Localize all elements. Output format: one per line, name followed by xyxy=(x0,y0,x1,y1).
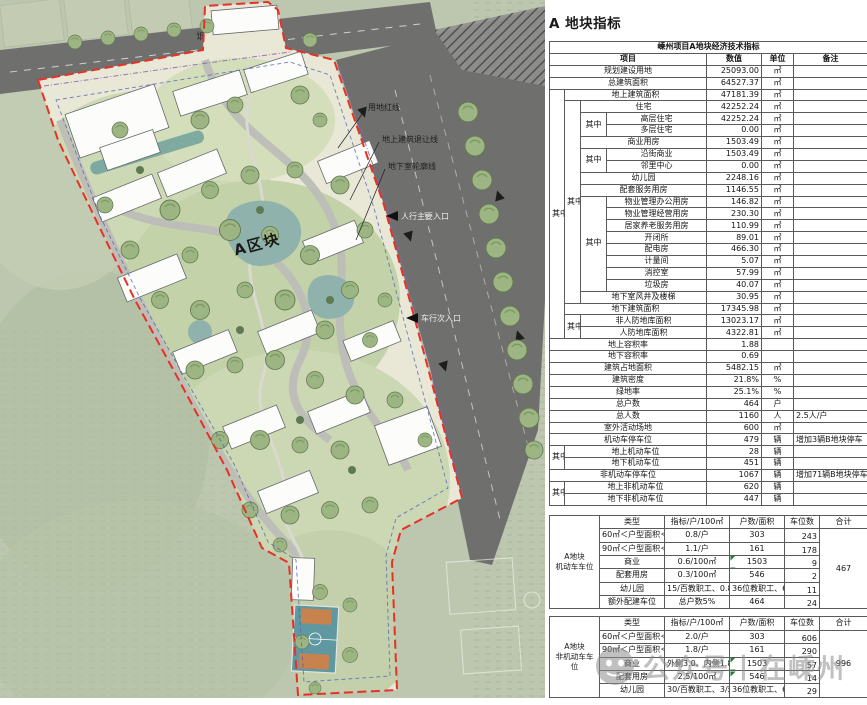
table-cell: 4322.81 xyxy=(707,327,762,339)
table-cell: 546 xyxy=(730,569,785,582)
table-cell xyxy=(794,149,867,161)
table-cell: 类型 xyxy=(600,617,665,630)
table-cell: 161 xyxy=(730,542,785,555)
table-cell: 户数/面积 xyxy=(730,617,785,630)
table-cell: 增加3辆B地块停车 xyxy=(794,434,867,446)
table-cell: 消控室 xyxy=(607,267,707,279)
table-cell: ㎡ xyxy=(762,172,794,184)
table-cell: 1.8/户 xyxy=(665,644,730,657)
table-cell: 数值 xyxy=(707,53,762,65)
table-cell: 居家养老服务用房 xyxy=(607,220,707,232)
table-cell: 5.07 xyxy=(707,256,762,268)
table-cell: 邻里中心 xyxy=(607,160,707,172)
table-cell: 2.0/户 xyxy=(665,630,730,643)
table-cell: ㎡ xyxy=(762,422,794,434)
table-cell: 辆 xyxy=(762,446,794,458)
table-cell: 其中 xyxy=(550,446,565,470)
table-cell xyxy=(794,77,867,89)
table-cell: 沿街商业 xyxy=(607,149,707,161)
table-cell: 合计 xyxy=(820,515,867,528)
setback-line-label: 地上建筑退让线 xyxy=(382,134,438,144)
table-cell: 9 xyxy=(785,555,820,568)
table-cell: 1.88 xyxy=(707,339,762,351)
building-footprint xyxy=(291,558,314,601)
table-cell: 451 xyxy=(707,458,762,470)
table-cell xyxy=(762,339,794,351)
table-cell: 0.00 xyxy=(707,160,762,172)
table-cell: ㎡ xyxy=(762,267,794,279)
table-cell: 商业用房 xyxy=(581,137,707,149)
table-cell: ㎡ xyxy=(762,244,794,256)
table-cell: ㎡ xyxy=(762,291,794,303)
table-cell: 290 xyxy=(785,644,820,657)
table-cell: 1146.55 xyxy=(707,184,762,196)
vehicle-entrance-label: 车行次入口 xyxy=(421,313,461,323)
table-cell: A地块 机动车车位 xyxy=(550,515,600,609)
table-cell: 辆 xyxy=(762,481,794,493)
table-cell xyxy=(762,351,794,363)
nonmotor-parking-table: A地块 非机动车车位类型指标/户/100㎡户数/面积车位数合计60㎡＜户型面积＜… xyxy=(549,616,867,697)
table-cell: 447 xyxy=(707,493,762,505)
table-cell: 600 xyxy=(707,422,762,434)
table-cell: 地上建筑面积 xyxy=(565,89,707,101)
table-cell: 辆 xyxy=(762,458,794,470)
table-cell: ㎡ xyxy=(762,113,794,125)
table-cell: 其中 xyxy=(565,101,581,303)
table-cell: 1503 xyxy=(730,657,785,670)
table-cell: 总户数5% xyxy=(665,596,730,609)
table-cell: ㎡ xyxy=(762,220,794,232)
table-cell: ㎡ xyxy=(762,77,794,89)
table-cell: ㎡ xyxy=(762,303,794,315)
table-cell: 15/百教职工、0.8/班 xyxy=(665,582,730,595)
table-cell: ㎡ xyxy=(762,101,794,113)
table-cell: 146.82 xyxy=(707,196,762,208)
table-cell: 47181.39 xyxy=(707,89,762,101)
table-cell: 60㎡＜户型面积＜90㎡ xyxy=(600,529,665,542)
table-cell: 总人数 xyxy=(550,410,707,422)
table-cell: 2.5人/户 xyxy=(794,410,867,422)
table-cell: 户数/面积 xyxy=(730,515,785,528)
table-cell: 机动车停车位 xyxy=(550,434,707,446)
table-cell: ㎡ xyxy=(762,196,794,208)
table-cell: 物业管理办公用房 xyxy=(607,196,707,208)
table-cell: 外侧3.0、内侧1.8 xyxy=(665,657,730,670)
table-cell: 建筑密度 xyxy=(550,374,707,386)
motor-parking-table: A地块 机动车车位类型指标/户/100㎡户数/面积车位数合计60㎡＜户型面积＜9… xyxy=(549,515,867,610)
table-cell xyxy=(794,267,867,279)
table-cell xyxy=(794,481,867,493)
table-cell xyxy=(794,446,867,458)
table-cell xyxy=(794,232,867,244)
pedestrian-entrance-label: 人行主要入口 xyxy=(401,211,449,221)
table-cell: 0.00 xyxy=(707,125,762,137)
table-cell: 30.95 xyxy=(707,291,762,303)
table-cell: ㎡ xyxy=(762,89,794,101)
table-cell: 其中 xyxy=(581,149,607,173)
table-cell: 30/百教职工、3/班 xyxy=(665,684,730,697)
table-cell: 40.07 xyxy=(707,279,762,291)
table-cell: 36位教职工、6班 xyxy=(730,582,785,595)
table-cell: 地下容积率 xyxy=(550,351,707,363)
table-cell: 住宅 xyxy=(581,101,707,113)
table-cell: ㎡ xyxy=(762,232,794,244)
table-cell: 地上机动车位 xyxy=(565,446,707,458)
table-cell xyxy=(794,291,867,303)
table-cell: 指标/户/100㎡ xyxy=(665,617,730,630)
table-cell: ㎡ xyxy=(762,256,794,268)
table-cell: 620 xyxy=(707,481,762,493)
table-cell: 幼儿园 xyxy=(600,582,665,595)
table-cell: 2.5/100㎡ xyxy=(665,671,730,684)
table-cell xyxy=(794,256,867,268)
table-cell: 161 xyxy=(730,644,785,657)
table-cell: 其中 xyxy=(565,315,581,339)
table-cell: 室外活动场地 xyxy=(550,422,707,434)
table-cell: 0.6/100㎡ xyxy=(665,555,730,568)
table-cell: 绿地率 xyxy=(550,386,707,398)
table-cell: 64527.37 xyxy=(707,77,762,89)
table-cell xyxy=(794,101,867,113)
table-cell xyxy=(794,363,867,375)
table-cell: 地下室风井及楼梯 xyxy=(581,291,707,303)
table-cell: 21.8% xyxy=(707,374,762,386)
table-cell xyxy=(794,113,867,125)
table-cell: 物业管理经营用房 xyxy=(607,208,707,220)
table-cell: 地下机动车位 xyxy=(565,458,707,470)
table-cell xyxy=(794,172,867,184)
table-cell: ㎡ xyxy=(762,208,794,220)
table-cell: 嵊州项目A地块经济技术指标 xyxy=(550,42,867,54)
table-cell: 57 xyxy=(785,657,820,670)
table-cell xyxy=(794,220,867,232)
main-indicators-table: 嵊州项目A地块经济技术指标项目数值单位备注规划建设用地25093.00㎡总建筑面… xyxy=(549,41,867,506)
table-cell: % xyxy=(762,374,794,386)
table-cell: 配电房 xyxy=(607,244,707,256)
table-cell: 1160 xyxy=(707,410,762,422)
table-cell: 其中 xyxy=(581,196,607,291)
table-cell xyxy=(794,315,867,327)
table-cell: 商业 xyxy=(600,657,665,670)
table-cell: 单位 xyxy=(762,53,794,65)
table-cell: 25093.00 xyxy=(707,65,762,77)
table-cell xyxy=(794,386,867,398)
table-cell: 非机动车停车位 xyxy=(550,470,707,482)
table-cell: 辆 xyxy=(762,493,794,505)
table-cell: ㎡ xyxy=(762,149,794,161)
table-cell: 人 xyxy=(762,410,794,422)
table-cell: 28 xyxy=(707,446,762,458)
table-cell: 42252.24 xyxy=(707,113,762,125)
table-cell: 地下非机动车位 xyxy=(565,493,707,505)
table-cell: 指标/户/100㎡ xyxy=(665,515,730,528)
table-cell xyxy=(794,65,867,77)
table-cell: 配套服务用房 xyxy=(581,184,707,196)
page-title: A 地块指标 xyxy=(549,12,867,32)
table-cell: 2248.16 xyxy=(707,172,762,184)
table-cell: 1.1/户 xyxy=(665,542,730,555)
basement-outline-label: 地下室轮廓线 xyxy=(388,161,436,171)
table-cell: 303 xyxy=(730,630,785,643)
table-cell: ㎡ xyxy=(762,65,794,77)
table-cell: 总户数 xyxy=(550,398,707,410)
table-cell: 辆 xyxy=(762,470,794,482)
table-cell: 其中 xyxy=(550,481,565,505)
table-cell: ㎡ xyxy=(762,327,794,339)
table-cell: 类型 xyxy=(600,515,665,528)
table-cell: 303 xyxy=(730,529,785,542)
table-cell: ㎡ xyxy=(762,137,794,149)
table-cell: 36位教职工、6班 xyxy=(730,684,785,697)
table-cell: 13023.17 xyxy=(707,315,762,327)
table-cell: 89.01 xyxy=(707,232,762,244)
table-cell xyxy=(794,125,867,137)
table-cell: 车位数 xyxy=(785,617,820,630)
table-cell: 高层住宅 xyxy=(607,113,707,125)
table-cell: 0.8/户 xyxy=(665,529,730,542)
table-cell: A地块 非机动车车位 xyxy=(550,617,600,697)
table-cell xyxy=(794,244,867,256)
table-cell xyxy=(794,196,867,208)
table-cell: 商业 xyxy=(600,555,665,568)
table-cell: 1503 xyxy=(730,555,785,568)
table-cell: 42252.24 xyxy=(707,101,762,113)
table-cell: 24 xyxy=(785,596,820,609)
table-cell xyxy=(794,208,867,220)
table-cell: ㎡ xyxy=(762,125,794,137)
table-cell: ㎡ xyxy=(762,160,794,172)
table-cell: % xyxy=(762,386,794,398)
table-cell xyxy=(794,398,867,410)
table-cell: 178 xyxy=(785,542,820,555)
table-cell: 90㎡＜户型面积＜144㎡ xyxy=(600,542,665,555)
table-cell xyxy=(794,458,867,470)
table-cell: 增加71辆B地块停车 xyxy=(794,470,867,482)
table-cell: 幼儿园 xyxy=(600,684,665,697)
table-cell: 辆 xyxy=(762,434,794,446)
table-cell xyxy=(794,279,867,291)
table-cell: 地上非机动车位 xyxy=(565,481,707,493)
table-cell: 项目 xyxy=(550,53,707,65)
table-cell xyxy=(794,184,867,196)
table-cell: 建筑占地面积 xyxy=(550,363,707,375)
table-cell xyxy=(794,327,867,339)
table-cell: 243 xyxy=(785,529,820,542)
table-cell: 1067 xyxy=(707,470,762,482)
table-cell: 110.99 xyxy=(707,220,762,232)
table-cell xyxy=(794,422,867,434)
table-cell: ㎡ xyxy=(762,184,794,196)
table-cell: 额外配建车位 xyxy=(600,596,665,609)
table-cell: 0.3/100㎡ xyxy=(665,569,730,582)
table-cell: ㎡ xyxy=(762,315,794,327)
table-cell: 60㎡＜户型面积＜90㎡ xyxy=(600,630,665,643)
table-cell: 规划建设用地 xyxy=(550,65,707,77)
table-cell: 合计 xyxy=(820,617,867,630)
table-cell xyxy=(794,160,867,172)
table-cell: 17345.98 xyxy=(707,303,762,315)
site-plan: 城中路 xyxy=(0,0,545,698)
table-cell: 57.99 xyxy=(707,267,762,279)
table-cell: 14 xyxy=(785,671,820,684)
table-cell: 479 xyxy=(707,434,762,446)
table-cell: 464 xyxy=(707,398,762,410)
table-cell xyxy=(794,374,867,386)
table-cell: 总建筑面积 xyxy=(550,77,707,89)
table-cell xyxy=(794,493,867,505)
table-cell: 地上容积率 xyxy=(550,339,707,351)
red-line-label: 用地红线 xyxy=(368,102,400,112)
table-cell xyxy=(794,339,867,351)
table-cell: 人防地库面积 xyxy=(581,327,707,339)
table-cell: 非人防地库面积 xyxy=(581,315,707,327)
table-cell: 1503.49 xyxy=(707,149,762,161)
table-cell: 90㎡＜户型面积＜144㎡ xyxy=(600,644,665,657)
table-cell: 开闭所 xyxy=(607,232,707,244)
table-cell: 配套用房 xyxy=(600,569,665,582)
site-plan-figure: 城中路 xyxy=(0,0,545,698)
table-cell: 其中 xyxy=(581,113,607,137)
table-cell: 户 xyxy=(762,398,794,410)
table-cell: 464 xyxy=(730,596,785,609)
table-cell: 25.1% xyxy=(707,386,762,398)
table-cell: 地下建筑面积 xyxy=(565,303,707,315)
table-cell: 1503.49 xyxy=(707,137,762,149)
table-cell: 467 xyxy=(820,529,867,609)
table-cell xyxy=(794,351,867,363)
indicators-panel: A 地块指标 嵊州项目A地块经济技术指标项目数值单位备注规划建设用地25093.… xyxy=(549,4,867,705)
table-cell: 幼儿园 xyxy=(581,172,707,184)
table-cell: 2 xyxy=(785,569,820,582)
table-cell: 多层住宅 xyxy=(607,125,707,137)
table-cell: 垃圾房 xyxy=(607,279,707,291)
table-cell: 546 xyxy=(730,671,785,684)
table-cell xyxy=(794,89,867,101)
table-cell: 其中 xyxy=(550,89,565,339)
table-cell: 606 xyxy=(785,630,820,643)
table-cell: 0.69 xyxy=(707,351,762,363)
table-cell: 5482.15 xyxy=(707,363,762,375)
table-cell: 备注 xyxy=(794,53,867,65)
table-cell: 29 xyxy=(785,684,820,697)
table-cell xyxy=(794,137,867,149)
table-cell: 配套用房 xyxy=(600,671,665,684)
table-cell: 230.30 xyxy=(707,208,762,220)
table-cell: 车位数 xyxy=(785,515,820,528)
table-cell: ㎡ xyxy=(762,363,794,375)
table-cell: ㎡ xyxy=(762,279,794,291)
table-cell: 466.30 xyxy=(707,244,762,256)
table-cell: 996 xyxy=(820,630,867,697)
table-cell: 11 xyxy=(785,582,820,595)
table-cell: 计量间 xyxy=(607,256,707,268)
table-cell xyxy=(794,303,867,315)
